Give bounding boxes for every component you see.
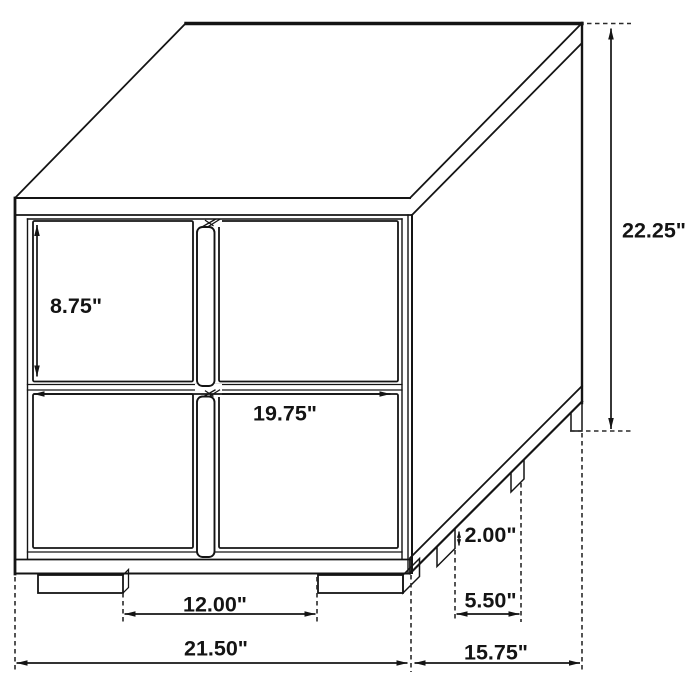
dimension-drawer-height: 8.75" (37, 225, 102, 377)
cabinet-top-face (15, 23, 582, 215)
diagram-canvas: 8.75" 19.75" 22.25" 2.00" 5.50" 12.00" 2… (0, 0, 700, 700)
dimension-label-side-feet-spacing: 5.50" (464, 589, 516, 613)
foot-side-middle (511, 460, 524, 493)
dimension-overall-height: 22.25" (611, 29, 686, 430)
drawer-front-upper-right (219, 221, 398, 382)
top-slab-bottom-right-edge (412, 44, 581, 215)
foot-side-front (437, 529, 455, 567)
foot-front-left (38, 575, 123, 593)
dimension-side-feet-spacing: 5.50" (457, 589, 520, 615)
dimension-foot-height: 2.00" (459, 523, 517, 547)
dimension-label-front-feet-spacing: 12.00" (183, 593, 247, 617)
dimension-overall-width: 21.50" (17, 637, 408, 664)
drawer-front-lower-left (33, 394, 193, 548)
dimension-label-drawer-height: 8.75" (50, 294, 102, 318)
side-bottom-edge (410, 402, 582, 574)
dimension-label-front-opening-width: 19.75" (253, 402, 317, 426)
top-left-edge (15, 23, 186, 198)
dimension-front-feet-spacing: 12.00" (125, 593, 316, 617)
dimension-label-foot-height: 2.00" (464, 523, 516, 547)
cabinet-side-panel (410, 23, 582, 574)
top-right-edge (410, 23, 582, 198)
feet (38, 402, 582, 594)
drawer-handles (195, 220, 222, 558)
nightstand-dimension-diagram: 8.75" 19.75" 22.25" 2.00" 5.50" 12.00" 2… (0, 0, 700, 700)
foot-front-right (318, 575, 403, 593)
handle-lower-bar (197, 397, 215, 558)
handle-upper-bar (197, 227, 215, 386)
dimension-label-overall-depth: 15.75" (464, 641, 528, 665)
dimension-label-overall-width: 21.50" (184, 637, 248, 661)
dimension-overall-depth: 15.75" (415, 641, 581, 665)
dimension-label-overall-height: 22.25" (622, 219, 686, 243)
plinth-base (15, 560, 410, 574)
